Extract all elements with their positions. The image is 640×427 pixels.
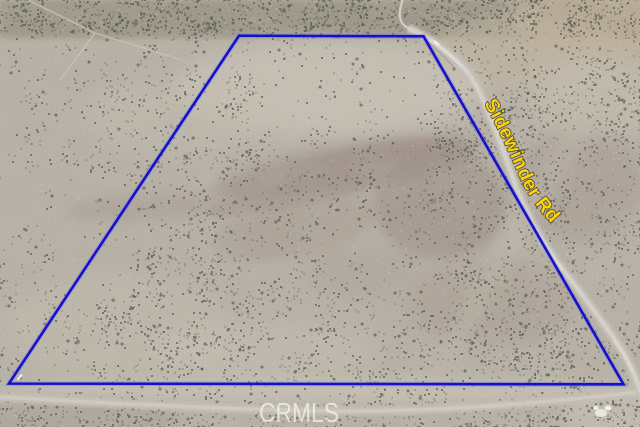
svg-text:CRMLS: CRMLS (259, 397, 339, 427)
